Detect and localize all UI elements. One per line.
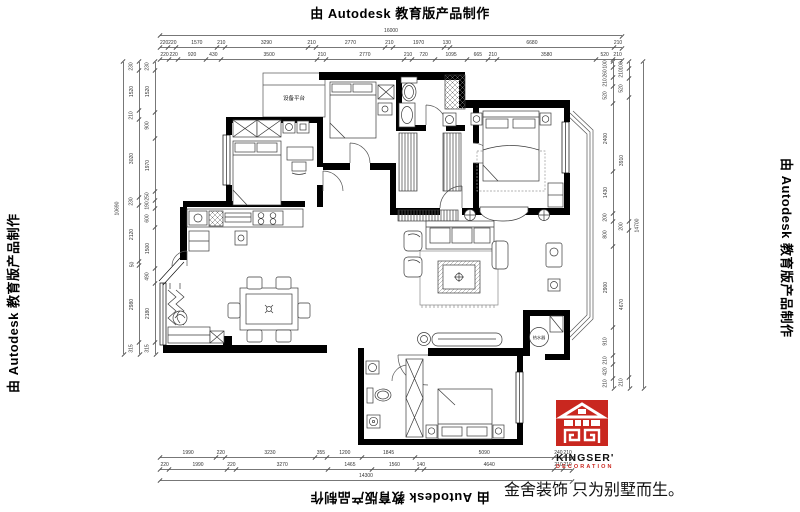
dim-value: 230 — [129, 198, 136, 206]
kingser-logo-icon — [556, 400, 608, 446]
dim-value: 3290 — [261, 40, 272, 47]
dim-chain-right-overall: 14700 — [632, 62, 644, 388]
dim-chain-top-overall: 16000 — [160, 26, 622, 36]
platform-outline — [263, 73, 325, 117]
dim-value: 210 — [129, 111, 136, 119]
brand-logo: KINGSER' DECORATION — [556, 400, 616, 470]
dim-chain-bottom-2: 22019902203270146515601404640210210 — [160, 459, 572, 470]
dim-value: 210 — [614, 40, 622, 47]
closet-corridor — [399, 133, 461, 191]
bedroom-3 — [330, 82, 394, 138]
dim-value: 210 — [307, 40, 315, 47]
dim-value: 220 — [227, 462, 235, 469]
dim-value: 1465 — [344, 462, 355, 469]
dim-value: 3020 — [129, 153, 136, 164]
dim-value: 14700 — [634, 218, 641, 232]
brand-slogan: 金舍装饰 只为别墅而生。 — [504, 476, 684, 500]
platform-label: 设备平台 — [283, 94, 306, 102]
dim-value: 14300 — [359, 473, 373, 480]
dim-value: 1520 — [129, 85, 136, 96]
south-bedroom — [366, 359, 504, 439]
watermark-top: 由 Autodesk 教育版产品制作 — [0, 3, 800, 22]
dim-chain-left-1: 230152021030202302120502980315 — [126, 62, 140, 354]
dim-value: 220 — [160, 462, 168, 469]
dim-value: 4670 — [619, 299, 626, 310]
kitchen — [187, 209, 303, 251]
dim-value: 1570 — [191, 40, 202, 47]
dim-value: 315 — [129, 344, 136, 352]
dim-chain-top-1: 2202201570210329021027702101970130668021… — [160, 37, 622, 48]
dim-chain-right-2: 10021052039102004670210 — [616, 62, 630, 388]
dim-value: 1560 — [389, 462, 400, 469]
bay-window-outline — [566, 111, 593, 340]
water-heater-room — [530, 316, 564, 347]
dim-value: 1970 — [413, 40, 424, 47]
dim-value: 2120 — [129, 229, 136, 240]
bathroom-north — [399, 75, 465, 127]
dim-value: 2770 — [345, 40, 356, 47]
watermark-right: 由 Autodesk 教育版产品制作 — [778, 158, 797, 337]
dim-value: 3910 — [619, 154, 626, 165]
brand-name: KINGSER' — [556, 452, 616, 464]
dim-value: 210 — [619, 70, 626, 78]
master-bedroom — [471, 111, 563, 207]
dim-value: 2980 — [129, 299, 136, 310]
dining-area — [168, 277, 310, 343]
dim-value: 3270 — [277, 462, 288, 469]
dim-value: 210 — [619, 379, 626, 387]
study-room — [233, 120, 313, 205]
dim-value: 520 — [619, 84, 626, 92]
water-heater-label: 热水器 — [533, 334, 546, 341]
dim-value: 4640 — [484, 462, 495, 469]
dim-value: 230 — [129, 62, 136, 70]
dim-value: 10690 — [114, 201, 121, 215]
living-room — [398, 207, 562, 346]
dim-value: 200 — [619, 222, 626, 230]
dim-value: 16000 — [384, 28, 398, 35]
dim-value: 1990 — [192, 462, 203, 469]
brand-subtitle: DECORATION — [556, 464, 616, 470]
dim-value: 6680 — [526, 40, 537, 47]
cad-floorplan-sheet: 由 Autodesk 教育版产品制作 由 Autodesk 教育版产品制作 由 … — [0, 0, 800, 512]
watermark-left: 由 Autodesk 教育版产品制作 — [3, 214, 22, 393]
floor-plan-svg: 设备平台 — [140, 55, 610, 455]
dim-chain-left-overall: 10690 — [112, 62, 124, 354]
